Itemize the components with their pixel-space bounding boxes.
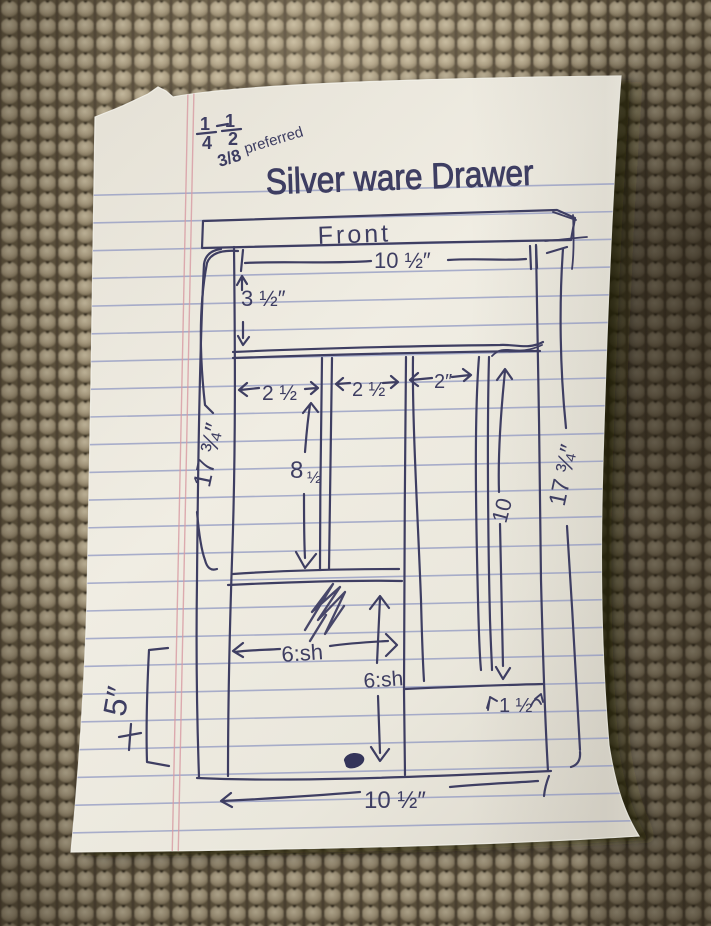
svg-text:2 ½: 2 ½ (262, 382, 297, 405)
svg-text:5″: 5″ (96, 684, 137, 719)
svg-text:6:sh: 6:sh (281, 639, 324, 667)
svg-text:10 ½″: 10 ½″ (364, 787, 426, 814)
svg-text:10 ½″: 10 ½″ (374, 248, 431, 273)
svg-text:3 ½″: 3 ½″ (241, 286, 286, 311)
svg-text:8: 8 (290, 457, 303, 484)
svg-text:½: ½ (307, 468, 321, 487)
svg-text:1: 1 (225, 111, 235, 131)
svg-text:Front: Front (317, 219, 391, 250)
svg-text:4: 4 (202, 133, 212, 153)
svg-text:2 ½: 2 ½ (352, 379, 386, 401)
svg-text:1: 1 (200, 114, 210, 134)
svg-text:6:sh: 6:sh (363, 667, 404, 693)
svg-text:2″: 2″ (434, 371, 452, 393)
svg-text:1 ½: 1 ½ (499, 695, 533, 717)
